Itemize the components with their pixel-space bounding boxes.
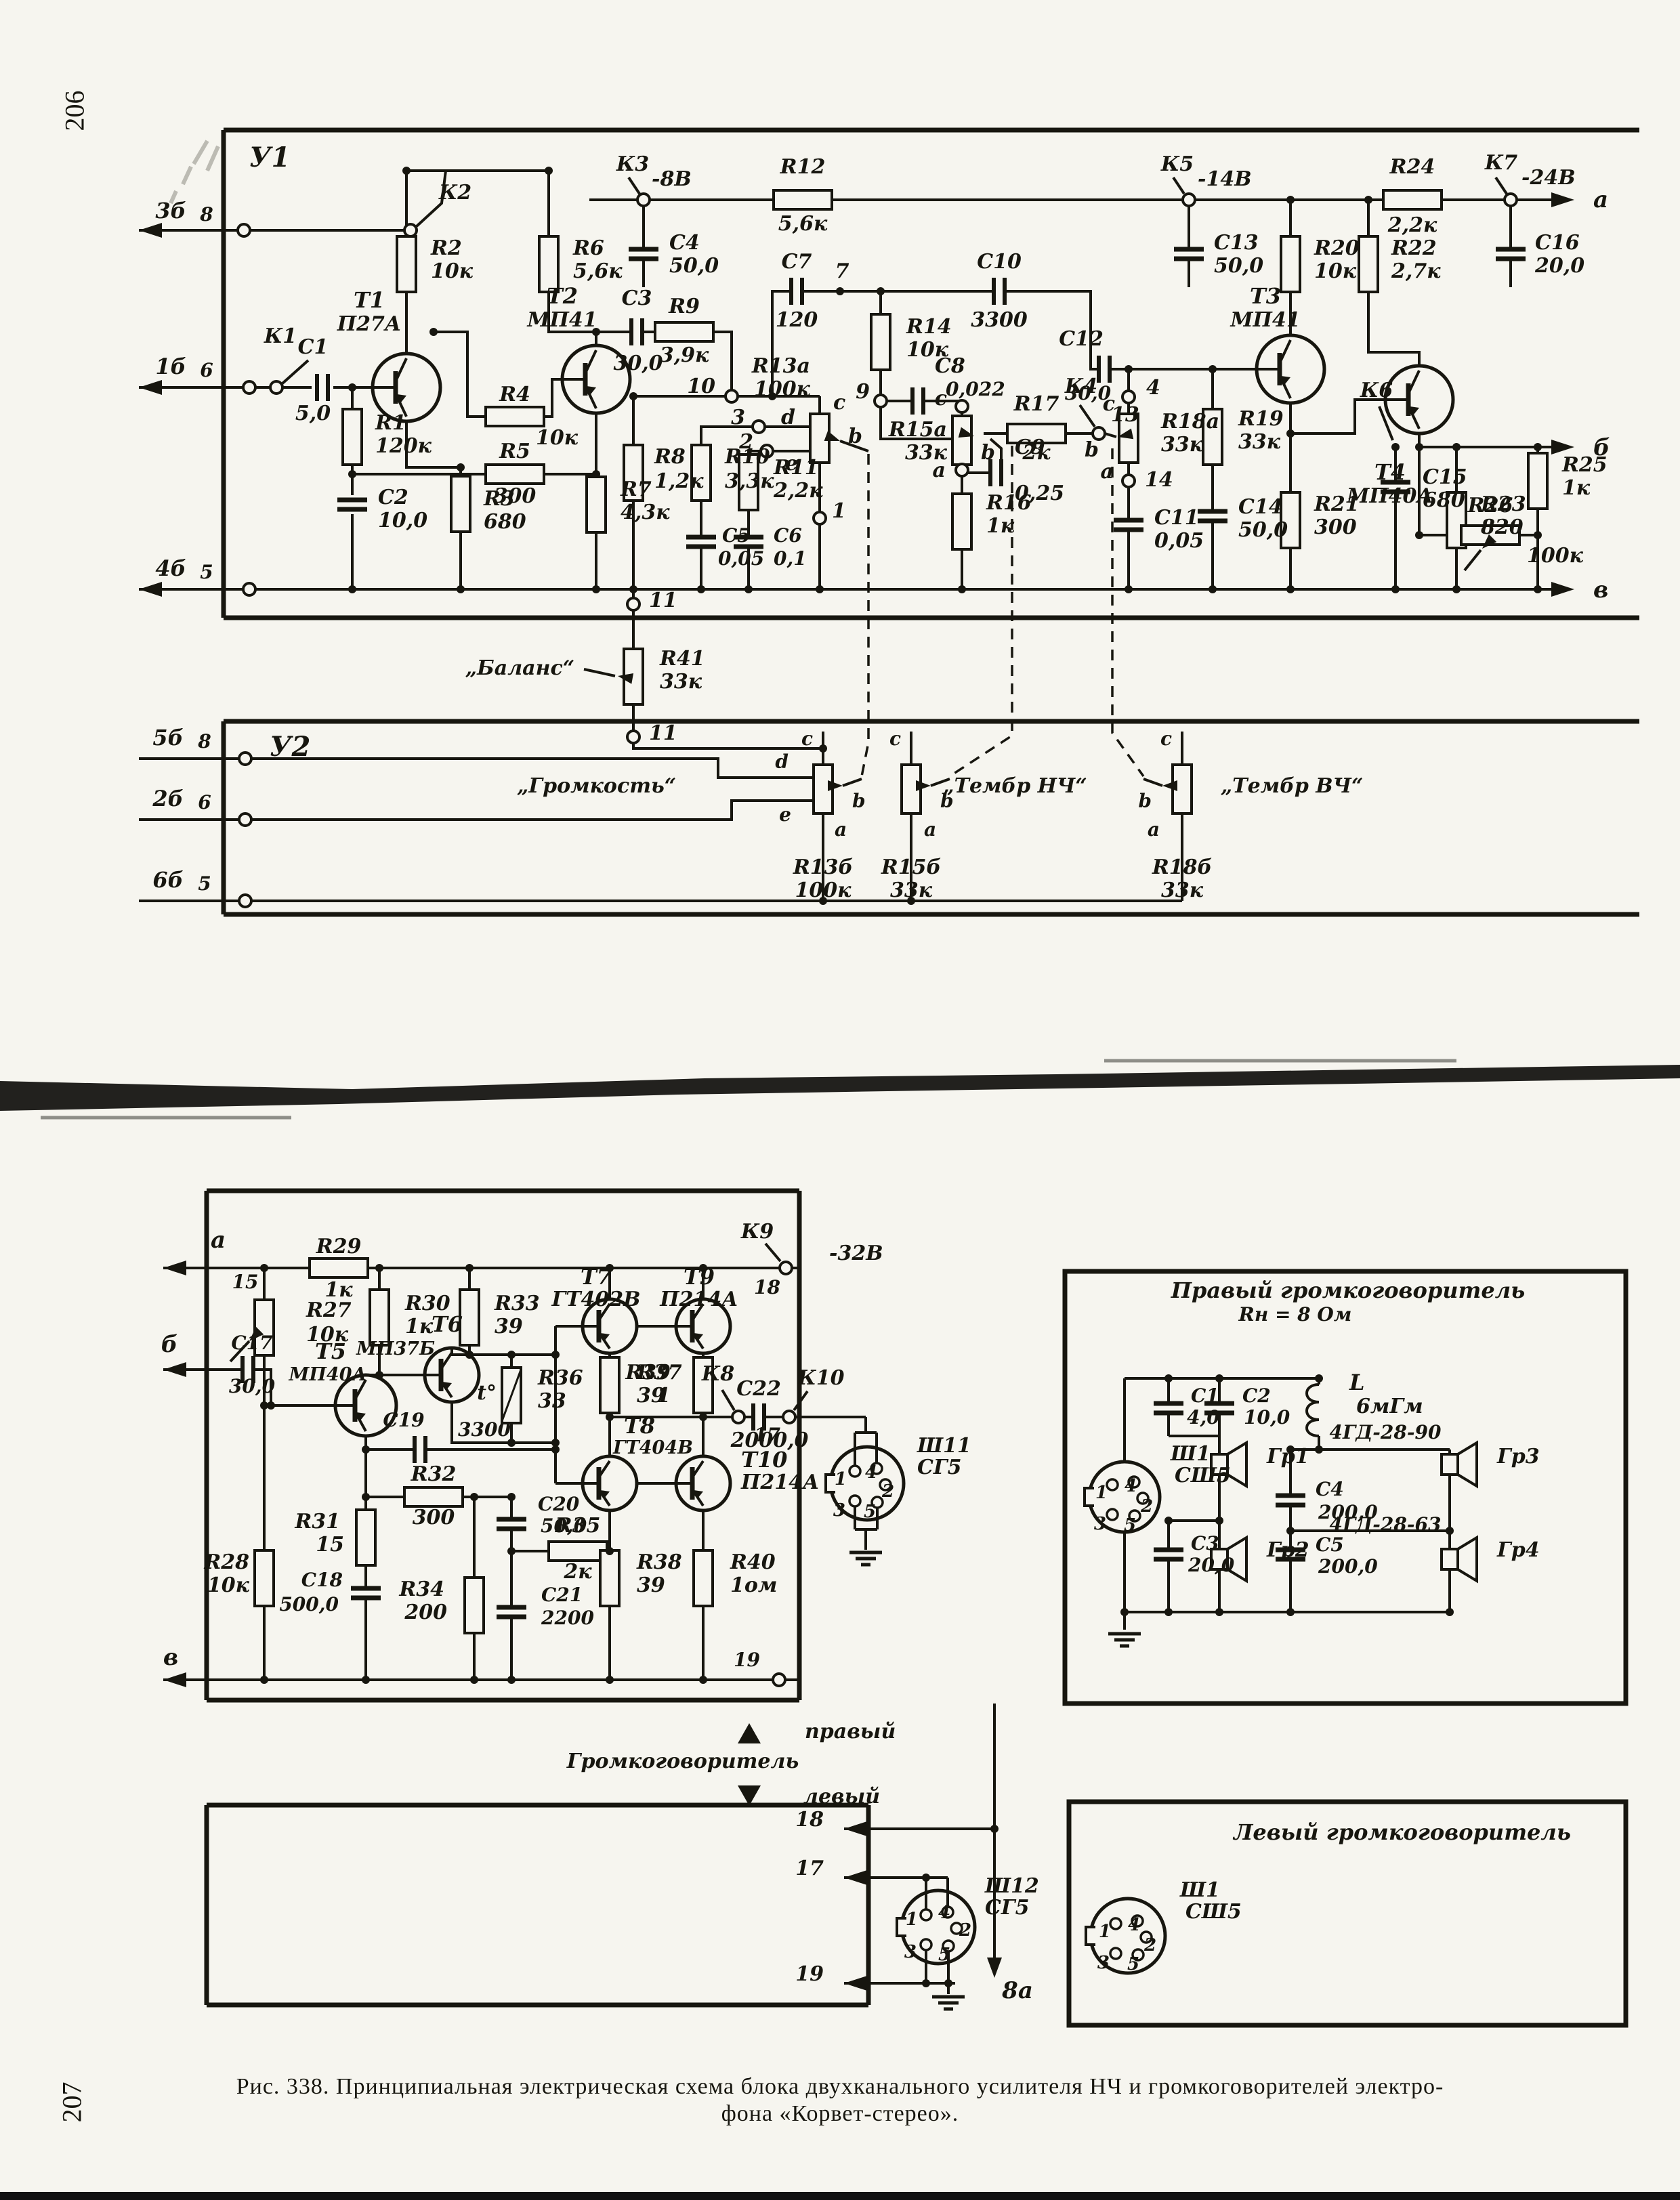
node-circle — [732, 1411, 744, 1423]
junction-dot — [545, 167, 553, 175]
resistor-R38 — [600, 1550, 619, 1606]
junction-dot — [375, 1371, 383, 1379]
junction-dot — [816, 585, 824, 593]
arrow-left — [139, 582, 162, 597]
capacitor-C20 — [497, 1519, 526, 1529]
capacitor-C4 — [629, 249, 658, 259]
label-gd90: 4ГД-28-90 — [1330, 1421, 1442, 1443]
label-r25v: 1к — [1562, 476, 1591, 500]
ground-symbol — [849, 1552, 882, 1565]
label-boxR2: Rн = 8 Ом — [1238, 1303, 1352, 1326]
arrow-left — [139, 380, 162, 395]
capacitor-C19 — [415, 1436, 425, 1463]
page-number-top: 206 — [59, 91, 91, 131]
label-v8: -8В — [652, 167, 692, 191]
node-circle — [270, 381, 282, 394]
label-r14n: R14 — [906, 315, 952, 339]
label-cb5v: 200,0 — [1318, 1555, 1378, 1578]
label-d6: 6 — [198, 791, 211, 813]
label-r40v: 1ом — [730, 1573, 777, 1597]
label-c8n: C8 — [935, 354, 965, 378]
junction-dot — [470, 1493, 478, 1501]
ground-symbol — [932, 1997, 965, 2009]
label-cb1v: 4,0 — [1187, 1406, 1220, 1429]
resistor-R3 — [451, 476, 470, 532]
label-r8v: 1,2к — [654, 469, 704, 493]
junction-dot — [507, 1676, 516, 1684]
label-r39v: 1 — [656, 1384, 671, 1408]
junction-dot — [1164, 1517, 1173, 1525]
label-r28v: 10к — [207, 1573, 250, 1597]
label-r24v: 2,2к — [1387, 213, 1437, 237]
label-d8: 8 — [199, 203, 213, 226]
label-t7n: Т7 — [581, 1264, 612, 1290]
label-c22n: C22 — [736, 1377, 781, 1401]
label-r34v: 200 — [404, 1601, 447, 1624]
label-c13n: C13 — [1214, 231, 1259, 255]
label-t6t: МП37Б — [356, 1338, 435, 1359]
connector-pin — [921, 1939, 931, 1950]
junction-dot — [922, 1874, 930, 1882]
label-r22n: R22 — [1391, 236, 1437, 260]
arrow-left — [139, 223, 162, 238]
label-r17n: R17 — [1013, 392, 1059, 416]
label-d5: 5 — [864, 1502, 876, 1522]
label-d7: 7 — [835, 259, 849, 283]
label-r4v: 10к — [536, 426, 579, 450]
resistor-R30 — [370, 1290, 389, 1345]
capacitor-C11 — [1114, 520, 1143, 530]
label-c16v: 20,0 — [1534, 254, 1584, 278]
label-d11: 11 — [649, 589, 677, 612]
label-vol: „Громкость“ — [517, 774, 676, 798]
label-t1t: П27А — [337, 312, 402, 336]
label-r31v: 15 — [316, 1533, 344, 1557]
label-r20v: 10к — [1314, 259, 1357, 283]
junction-dot — [267, 1401, 275, 1410]
label-litc: c — [1160, 727, 1172, 750]
label-c15n: C15 — [1423, 465, 1467, 489]
node-circle — [956, 400, 968, 412]
label-r7n: R7 — [620, 478, 652, 501]
label-ssh5: СШ5 — [1185, 1900, 1242, 1924]
node-circle — [1183, 194, 1195, 206]
figure-caption-line2: фона «Корвет-стерео». — [0, 2101, 1680, 2127]
junction-dot — [1534, 531, 1542, 539]
node-circle — [627, 598, 639, 610]
label-d2: 2 — [1143, 1935, 1156, 1955]
label-t3b: 3б — [155, 198, 186, 224]
label-t10t: П214А — [740, 1471, 819, 1494]
label-d6: 6 — [200, 359, 213, 381]
capacitor-C8 — [912, 387, 923, 415]
label-c7v: 120 — [776, 308, 818, 332]
label-c7n: C7 — [782, 250, 812, 274]
label-t9t: П214А — [659, 1288, 738, 1311]
junction-dot — [1286, 585, 1295, 593]
resistor-R34 — [465, 1578, 484, 1633]
label-litc: c — [833, 391, 845, 415]
label-t4n: Т4 — [1374, 459, 1406, 485]
label-r15an: R15а — [888, 418, 947, 442]
label-r5v: 300 — [494, 484, 537, 508]
label-r2v: 10к — [431, 259, 474, 283]
label-t2t: МП41 — [526, 308, 597, 332]
label-c1n: C1 — [298, 335, 329, 359]
arrow-right — [1551, 440, 1574, 454]
label-r23v: 820 — [1480, 515, 1524, 539]
arrow-down — [987, 1958, 1002, 1978]
label-d3: 3 — [1094, 1514, 1106, 1534]
resistor-R29 — [310, 1258, 368, 1277]
label-boxL1: Левый громкоговоритель — [1232, 1819, 1571, 1845]
label-sg5: СГ5 — [917, 1456, 961, 1479]
mechanical-gang-dashed-link — [862, 454, 868, 776]
resistor-R24 — [1383, 190, 1442, 209]
label-t8t: ГТ404В — [612, 1437, 693, 1458]
junction-dot — [362, 1676, 370, 1684]
label-la: а — [211, 1227, 226, 1254]
label-r32v: 300 — [413, 1506, 455, 1529]
label-r22v: 2,7к — [1391, 259, 1441, 283]
label-litc: c — [801, 727, 813, 750]
label-t10n: Т10 — [741, 1447, 787, 1473]
label-t4b: 4б — [155, 555, 186, 581]
resistor-R14 — [871, 314, 890, 370]
label-d2: 2 — [738, 430, 753, 454]
junction-dot — [1364, 196, 1372, 204]
label-r26v: 100к — [1527, 544, 1584, 568]
junction-dot — [465, 1351, 474, 1359]
wire — [1307, 1384, 1319, 1436]
label-ssh5: СШ5 — [1175, 1464, 1231, 1487]
junction-dot — [551, 1445, 560, 1454]
label-legL: левый — [803, 1785, 880, 1808]
junction-dot — [1286, 1527, 1295, 1535]
label-coilL: L — [1349, 1370, 1365, 1395]
label-k3: К3 — [616, 152, 649, 176]
wire — [765, 1244, 780, 1261]
label-r36n: R36 — [537, 1366, 583, 1390]
label-lita: a — [933, 459, 946, 482]
junction-dot — [507, 1351, 516, 1359]
junction-dot — [402, 167, 411, 175]
junction-dot — [592, 470, 600, 478]
label-boxR1: Правый громкоговоритель — [1171, 1277, 1526, 1303]
label-d18: 18 — [754, 1276, 780, 1298]
arrow-right — [1551, 192, 1574, 207]
label-c18n: C18 — [301, 1569, 343, 1591]
label-r19n: R19 — [1238, 407, 1284, 431]
label-r38n: R38 — [636, 1550, 682, 1574]
junction-dot — [699, 1676, 707, 1684]
label-r9n: R9 — [668, 295, 700, 318]
circuit-schematic: У1У23б8К21б6К14б5К3-8ВR125,6кК5-14ВR242,… — [0, 0, 1680, 2200]
label-r36v: 33 — [538, 1389, 566, 1413]
label-d11: 11 — [649, 721, 677, 745]
resistor-R40 — [694, 1550, 713, 1606]
junction-dot — [429, 328, 438, 336]
label-lv: в — [1593, 576, 1608, 604]
resistor-R32 — [404, 1487, 463, 1506]
label-r11v: 2,2к — [773, 479, 823, 503]
wire — [1465, 550, 1481, 570]
label-k2: К2 — [438, 181, 471, 205]
junction-dot — [260, 1264, 268, 1272]
junction-dot — [1120, 1608, 1129, 1616]
label-t1b: 1б — [155, 354, 186, 379]
wire — [1173, 177, 1184, 194]
label-legR: правый — [805, 1720, 896, 1743]
label-c4n: C4 — [669, 231, 700, 255]
label-d14: 14 — [1145, 468, 1173, 492]
junction-dot — [1534, 585, 1542, 593]
junction-dot — [348, 383, 356, 392]
label-d4: 4 — [1128, 1915, 1140, 1935]
label-c21n: C21 — [541, 1584, 583, 1606]
wire — [1080, 405, 1095, 427]
node-circle — [238, 224, 250, 236]
node-circle — [404, 224, 417, 236]
label-d9: 9 — [856, 380, 870, 404]
label-c20n: C20 — [538, 1493, 580, 1515]
label-litb: b — [1138, 790, 1152, 812]
label-k1: К1 — [264, 324, 297, 348]
label-d1: 1 — [906, 1909, 918, 1930]
figure-caption-line1: Рис. 338. Принципиальная электрическая с… — [0, 2074, 1680, 2100]
node-circle — [243, 381, 255, 394]
label-r18av: 33к — [1161, 433, 1204, 457]
scan-smudge — [171, 141, 218, 203]
junction-dot — [1391, 585, 1400, 593]
label-litb: b — [852, 790, 866, 812]
label-gr2: Гр2 — [1266, 1538, 1309, 1562]
label-c5v: 0,05 — [718, 547, 764, 570]
junction-dot — [1215, 1374, 1223, 1382]
label-r4n: R4 — [499, 383, 530, 406]
junction-dot — [836, 287, 844, 295]
junction-dot — [348, 470, 356, 478]
label-r7v: 4,3к — [621, 501, 670, 524]
label-r16v: 1к — [986, 514, 1015, 538]
label-litb: b — [981, 441, 995, 465]
label-c15v: 680 — [1423, 488, 1465, 512]
label-r1v: 120к — [375, 434, 432, 458]
node-circle — [1122, 391, 1135, 403]
wire — [1105, 433, 1116, 437]
wire — [1290, 400, 1385, 433]
label-litc: c — [1103, 392, 1115, 416]
label-bal: „Баланс“ — [465, 656, 574, 680]
resistor-R33 — [460, 1290, 479, 1345]
label-r21v: 300 — [1314, 515, 1357, 539]
connector-pin — [1107, 1509, 1118, 1520]
junction-dot — [1286, 429, 1295, 438]
capacitor-C4b — [1276, 1496, 1305, 1505]
label-d5: 5 — [198, 872, 211, 895]
label-d3: 3 — [833, 1500, 845, 1521]
label-r30v: 1к — [405, 1315, 434, 1338]
junction-dot — [592, 585, 600, 593]
capacitor-C1b — [1154, 1403, 1183, 1413]
speaker-horn — [1458, 1538, 1477, 1581]
label-r35n: R35 — [555, 1514, 601, 1538]
label-c10n: C10 — [977, 250, 1022, 274]
junction-dot — [348, 585, 356, 593]
label-litb: b — [1085, 438, 1099, 462]
label-litd: d — [781, 406, 795, 429]
resistor-R7 — [587, 477, 606, 532]
junction-dot — [362, 1445, 370, 1454]
label-r1n: R1 — [375, 411, 406, 435]
label-r18bv: 33к — [1161, 879, 1204, 902]
label-t5n: Т5 — [315, 1338, 346, 1364]
label-t5t: МП40А — [289, 1364, 367, 1385]
node-circle — [1122, 475, 1135, 487]
label-k6: К6 — [1360, 379, 1393, 402]
node-circle — [956, 464, 968, 476]
label-c19n: C19 — [383, 1409, 424, 1431]
label-tnch: „Тембр НЧ“ — [942, 774, 1087, 798]
junction-dot — [1215, 1608, 1223, 1616]
label-r18an: R18а — [1160, 410, 1219, 433]
label-sh12: Ш12 — [984, 1874, 1039, 1898]
speaker-Gr4 — [1442, 1549, 1458, 1569]
wire — [629, 177, 639, 194]
label-d1: 1 — [1095, 1483, 1108, 1503]
label-gr4: Гр4 — [1496, 1538, 1540, 1562]
junction-dot — [1391, 443, 1400, 451]
resistor-R12 — [774, 190, 832, 209]
label-cb1n: C1 — [1191, 1384, 1219, 1407]
junction-dot — [922, 1979, 930, 1987]
label-r41n: R41 — [659, 647, 705, 671]
label-lv: в — [163, 1644, 178, 1671]
junction-dot — [457, 463, 465, 471]
capacitor-C10 — [994, 278, 1005, 305]
label-r21n: R21 — [1314, 492, 1360, 516]
junction-dot — [1315, 1445, 1323, 1454]
junction-dot — [1534, 443, 1542, 451]
label-c13v: 50,0 — [1214, 254, 1263, 278]
scanned-book-page: У1У23б8К21б6К14б5К3-8ВR125,6кК5-14ВR242,… — [0, 0, 1680, 2200]
label-lb: б — [161, 1331, 178, 1358]
node-circle — [773, 1674, 785, 1686]
label-tdeg: t° — [477, 1381, 497, 1405]
label-r33n: R33 — [494, 1292, 540, 1315]
label-la: а — [1593, 186, 1608, 213]
label-r13an: R13а — [751, 354, 810, 378]
capacitor-C3 — [631, 318, 642, 345]
node-circle — [627, 731, 639, 743]
label-r15bn: R15б — [881, 855, 941, 879]
junction-dot — [606, 1547, 614, 1555]
label-c17v: 30,0 — [229, 1375, 276, 1397]
node-circle — [1505, 194, 1517, 206]
capacitor-C13 — [1174, 249, 1204, 259]
label-c18v: 500,0 — [279, 1593, 339, 1615]
label-t5b: 5б — [152, 725, 183, 750]
label-c14v: 50,0 — [1238, 518, 1288, 542]
wiper-arrowhead — [916, 780, 931, 791]
label-t6b: 6б — [152, 867, 183, 893]
label-t2n: Т2 — [547, 283, 578, 309]
label-k8: К8 — [701, 1362, 734, 1386]
label-d4: 4 — [938, 1903, 950, 1923]
label-litc: c — [889, 727, 901, 750]
junction-dot — [465, 1264, 474, 1272]
label-cb3n: C3 — [1191, 1532, 1219, 1554]
resistor-R4 — [486, 407, 544, 426]
speaker-Gr3 — [1442, 1454, 1458, 1475]
node-circle — [637, 194, 650, 206]
label-sh1: Ш1 — [1179, 1878, 1220, 1902]
label-k4: К4 — [1064, 375, 1097, 398]
junction-dot — [551, 1351, 560, 1359]
label-k7: К7 — [1484, 151, 1517, 175]
junction-dot — [1452, 443, 1461, 451]
junction-dot — [699, 1413, 707, 1421]
label-r20n: R20 — [1314, 236, 1360, 260]
junction-dot — [1209, 585, 1217, 593]
label-litb: b — [848, 425, 862, 448]
label-d2: 2 — [1140, 1496, 1153, 1517]
capacitor-C16 — [1496, 249, 1526, 259]
label-r26n: R26 — [1467, 494, 1513, 517]
node-circle — [753, 421, 765, 433]
capacitor-C18 — [351, 1588, 381, 1598]
label-r17v: 2к — [1022, 441, 1051, 465]
label-k5: К5 — [1160, 152, 1194, 176]
wire — [843, 779, 862, 786]
connector-pin — [1110, 1948, 1121, 1959]
label-sg5: СГ5 — [985, 1896, 1029, 1920]
capacitor-C12 — [1099, 356, 1110, 383]
label-r6v: 5,6к — [573, 259, 623, 283]
wire — [434, 332, 486, 417]
potentiometer-R15a — [952, 416, 971, 465]
wire — [584, 669, 615, 676]
label-t1n: Т1 — [354, 287, 385, 313]
label-r41v: 33к — [660, 670, 702, 694]
resistor-R2 — [397, 236, 416, 292]
node-circle — [726, 390, 738, 402]
junction-dot — [944, 1979, 952, 1987]
label-c16n: C16 — [1535, 231, 1580, 255]
label-d2: 2 — [959, 1920, 971, 1941]
capacitor-C5 — [686, 537, 716, 547]
label-legS: Громкоговоритель — [566, 1750, 799, 1773]
junction-dot — [606, 1676, 614, 1684]
label-gr1: Гр1 — [1266, 1445, 1309, 1468]
wire — [282, 360, 308, 383]
label-d5: 5 — [200, 561, 213, 583]
arrow-left — [844, 1821, 867, 1836]
wire — [1143, 779, 1162, 786]
label-t3t: МП41 — [1230, 308, 1300, 332]
label-c4v: 50,0 — [669, 254, 719, 278]
label-r35v: 2к — [563, 1560, 592, 1584]
label-d5: 5 — [1124, 1515, 1136, 1536]
connector-pin — [849, 1496, 860, 1506]
label-c11n: C11 — [1154, 506, 1199, 530]
label-litb: b — [940, 790, 954, 812]
label-lite: e — [785, 452, 798, 475]
junction-dot — [375, 1264, 383, 1272]
label-d4: 4 — [1125, 1476, 1137, 1496]
resistor-R37 — [600, 1357, 619, 1413]
label-litd: d — [775, 750, 789, 773]
